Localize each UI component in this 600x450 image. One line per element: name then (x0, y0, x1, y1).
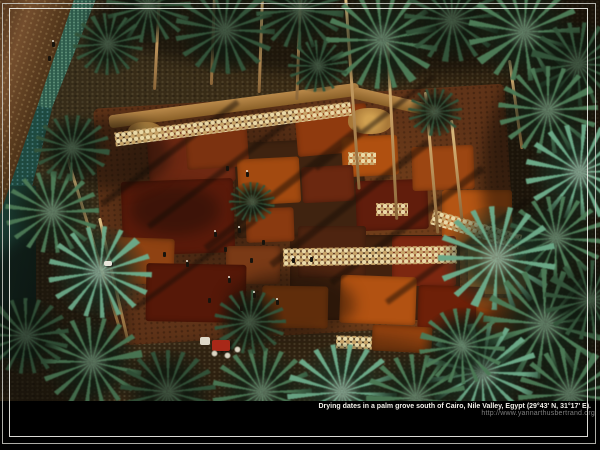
person (214, 232, 217, 237)
palm-tree (73, 13, 143, 75)
palm-tree (419, 308, 505, 384)
person-head (214, 230, 216, 232)
person (228, 278, 231, 283)
person (240, 306, 243, 311)
caption-text: Drying dates in a palm grove south of Ca… (0, 403, 600, 410)
person (186, 262, 189, 267)
person (292, 258, 295, 263)
person-head (238, 226, 240, 228)
photo-canvas (0, 0, 600, 401)
person (262, 240, 265, 245)
person (226, 166, 229, 171)
person (238, 228, 241, 233)
person-head (228, 276, 230, 278)
person-head (52, 40, 54, 42)
photo-slide: Drying dates in a palm grove south of Ca… (0, 0, 600, 450)
person (250, 258, 253, 263)
white-donkey (104, 261, 112, 266)
person (52, 42, 55, 47)
person (208, 298, 211, 303)
person (163, 252, 166, 257)
person-head (253, 291, 255, 293)
caption-bar: Drying dates in a palm grove south of Ca… (0, 401, 600, 450)
palm-tree (408, 88, 462, 136)
person (224, 247, 227, 252)
person-head (246, 170, 248, 172)
person (246, 172, 249, 177)
tractor-wheel (211, 350, 218, 357)
person-head (292, 256, 294, 258)
palm-tree (288, 40, 348, 93)
palm-tree (48, 226, 152, 318)
photo-credit-url: http://www.yannarthusbertrand.org (0, 410, 600, 417)
tractor-wheel (234, 346, 241, 353)
tractor-canopy (200, 337, 210, 345)
person (253, 293, 256, 298)
person (276, 300, 279, 305)
tractor-wheel (224, 352, 231, 359)
person-head (186, 260, 188, 262)
palm-shadow (130, 185, 220, 235)
person-head (276, 298, 278, 300)
palm-tree (34, 115, 110, 182)
scene-layer (0, 0, 600, 401)
person (310, 257, 313, 262)
sack-row (283, 245, 457, 266)
palm-tree (229, 182, 275, 222)
sack-row (376, 203, 408, 216)
sack-row (348, 152, 376, 165)
person (48, 56, 51, 61)
